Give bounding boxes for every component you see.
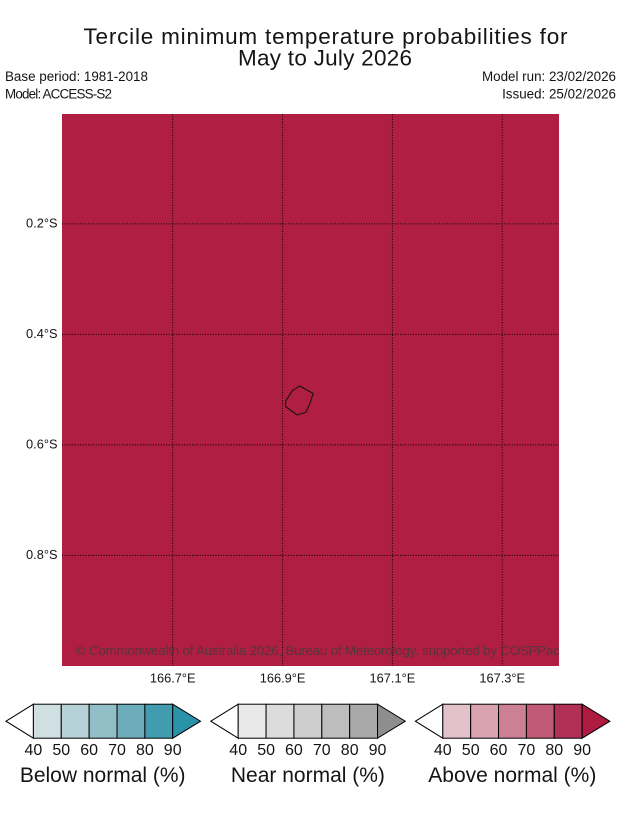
svg-text:166.7°E: 166.7°E: [150, 671, 196, 686]
svg-text:50: 50: [462, 742, 480, 759]
svg-text:90: 90: [164, 742, 182, 759]
svg-text:60: 60: [80, 742, 98, 759]
svg-text:40: 40: [25, 742, 43, 759]
svg-text:0.8°S: 0.8°S: [26, 547, 57, 562]
svg-text:60: 60: [285, 742, 303, 759]
svg-text:40: 40: [229, 742, 247, 759]
svg-text:167.1°E: 167.1°E: [370, 671, 416, 686]
svg-text:Below normal (%): Below normal (%): [20, 764, 186, 787]
svg-text:70: 70: [518, 742, 536, 759]
svg-text:0.4°S: 0.4°S: [26, 326, 57, 341]
svg-text:Model run: 23/02/2026: Model run: 23/02/2026: [482, 69, 616, 84]
svg-text:90: 90: [369, 742, 387, 759]
svg-text:Above normal (%): Above normal (%): [428, 764, 596, 787]
svg-text:Base period: 1981-2018: Base period: 1981-2018: [5, 69, 148, 84]
svg-text:50: 50: [52, 742, 70, 759]
svg-text:Model: ACCESS-S2: Model: ACCESS-S2: [5, 87, 112, 102]
svg-text:166.9°E: 166.9°E: [260, 671, 306, 686]
svg-text:80: 80: [136, 742, 154, 759]
svg-text:167.3°E: 167.3°E: [479, 671, 525, 686]
svg-text:80: 80: [545, 742, 563, 759]
svg-text:© Commonwealth of Australia 20: © Commonwealth of Australia 2026, Bureau…: [76, 643, 560, 658]
svg-text:70: 70: [313, 742, 331, 759]
svg-text:Near normal (%): Near normal (%): [231, 764, 385, 787]
svg-text:80: 80: [341, 742, 359, 759]
svg-text:May to July 2026: May to July 2026: [238, 46, 412, 71]
svg-text:90: 90: [573, 742, 591, 759]
svg-text:40: 40: [434, 742, 452, 759]
svg-text:0.2°S: 0.2°S: [26, 216, 57, 231]
svg-text:50: 50: [257, 742, 275, 759]
svg-text:70: 70: [108, 742, 126, 759]
svg-text:60: 60: [490, 742, 508, 759]
svg-text:Issued: 25/02/2026: Issued: 25/02/2026: [502, 87, 616, 102]
svg-text:0.6°S: 0.6°S: [26, 437, 57, 452]
